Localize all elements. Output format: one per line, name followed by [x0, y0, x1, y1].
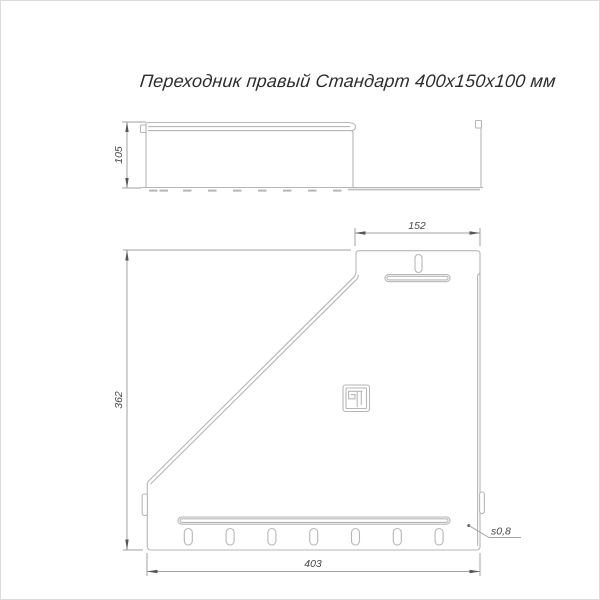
- side-view: 105: [113, 121, 483, 191]
- side-left-tab: [141, 125, 147, 133]
- base-width-dimension: 403: [147, 553, 480, 576]
- top-vertical-slot: [415, 255, 422, 273]
- mounting-slot: [352, 529, 360, 546]
- thickness-label: s0,8: [491, 526, 511, 538]
- main-view-part: [142, 251, 484, 550]
- mounting-slot: [226, 529, 234, 546]
- top-horizontal-slot: [385, 275, 450, 282]
- left-connector-tab: [142, 494, 147, 516]
- flange-width-dimension: 152: [355, 220, 480, 246]
- mounting-slot: [268, 529, 276, 546]
- dim-base-width-label: 403: [304, 558, 322, 570]
- mounting-slot: [435, 529, 443, 546]
- right-connector-tab: [480, 492, 485, 514]
- mounting-slot: [184, 529, 192, 546]
- mounting-slot: [310, 529, 318, 546]
- side-view-part: [140, 121, 483, 191]
- part-outline: [147, 251, 480, 550]
- dim-side-height-label: 105: [113, 146, 125, 164]
- main-view: 362 152 403: [113, 220, 521, 576]
- technical-drawing: 105: [0, 0, 600, 600]
- side-right-hook: [476, 121, 482, 129]
- mounting-slot: [393, 529, 401, 546]
- dim-height-label: 362: [113, 391, 125, 409]
- bottom-long-slot: [178, 517, 450, 524]
- dim-flange-width-label: 152: [408, 220, 426, 232]
